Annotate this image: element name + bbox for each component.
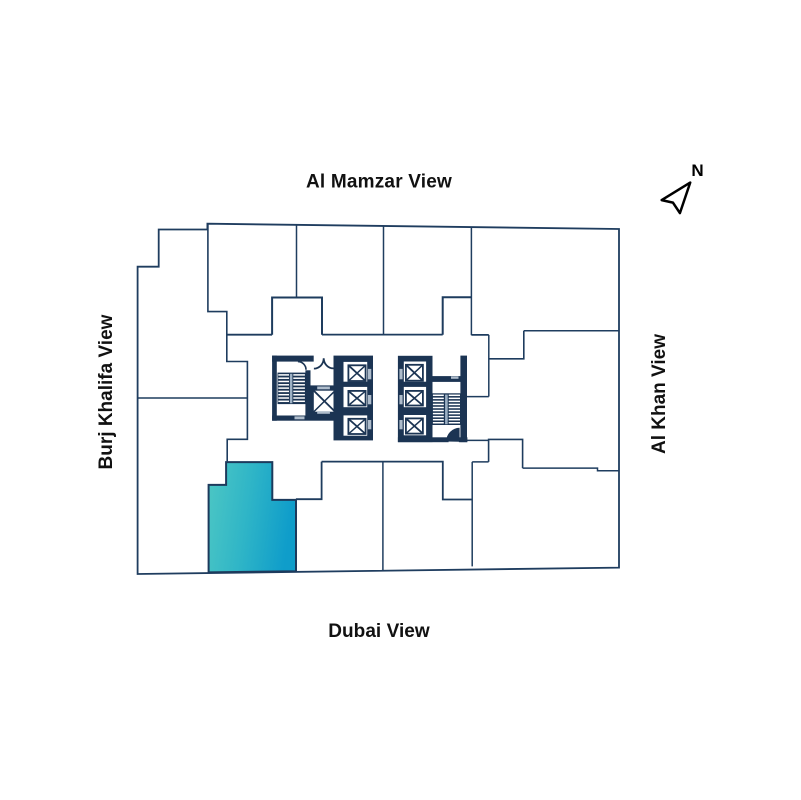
svg-text:Al Khan View: Al Khan View xyxy=(649,334,670,454)
svg-text:Burj Khalifa View: Burj Khalifa View xyxy=(96,314,117,469)
svg-text:Dubai View: Dubai View xyxy=(328,621,430,642)
svg-text:Al Mamzar View: Al Mamzar View xyxy=(306,172,452,193)
svg-text:N: N xyxy=(691,161,703,180)
